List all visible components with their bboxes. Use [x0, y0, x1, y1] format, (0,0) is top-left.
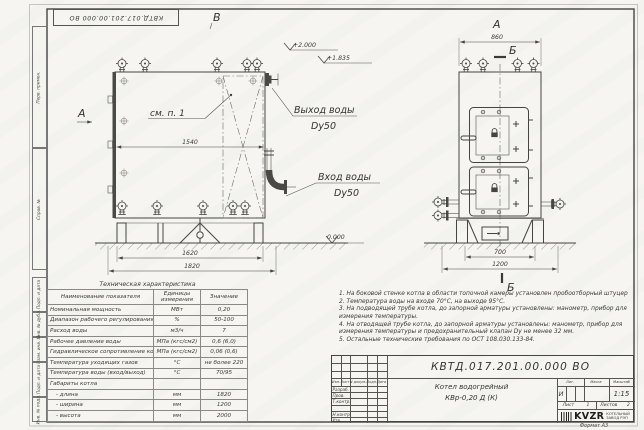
mass-label: Масса	[584, 380, 609, 384]
scale-value: 1:15	[609, 390, 635, 398]
valve-icon	[116, 200, 128, 215]
valve-icon	[528, 58, 540, 73]
door-handle	[461, 136, 476, 140]
col-header: Наименование показателя	[48, 290, 154, 305]
spec-table-title: Техническая характеристика	[47, 281, 248, 288]
technical-notes: 1. На боковой стенке котла в области топ…	[339, 291, 635, 345]
col-ndokum: N докум.	[350, 380, 367, 384]
table-row: Рабочее давление водыМПа (кгс/см2)0,6 (6…	[48, 336, 248, 347]
valve-icon	[460, 58, 472, 73]
valve-icon	[477, 58, 489, 73]
svg-text:В: В	[213, 11, 221, 24]
kvzr-logo: KVZR КОТЕЛЬНЫЙ ЗАВОД РЭП	[557, 410, 635, 423]
lower-door	[461, 167, 533, 216]
col-list: Лист	[341, 380, 350, 384]
upper-door	[461, 108, 533, 163]
ground-line-front	[95, 243, 348, 250]
crosshair-mark-icon	[249, 77, 258, 86]
crosshair-mark-icon	[120, 169, 129, 178]
margin-box-perv-primen: Перв. примен.	[32, 26, 48, 148]
outlet-nozzle	[265, 73, 278, 86]
valve-icon	[239, 200, 251, 215]
col-header: Единицы измерения	[154, 290, 201, 305]
bolt-icon	[497, 110, 501, 114]
sign-razrab: Разраб.	[333, 387, 349, 392]
outlet-leader: Выход воды Dy50	[272, 88, 357, 132]
table-row: Расход водым3/ч7	[48, 326, 248, 337]
logo-barcode-icon	[561, 412, 572, 421]
bolt-icon	[497, 156, 501, 160]
format-label: Формат А3	[552, 423, 636, 429]
sign-nkontr: Н.контр.	[333, 412, 352, 417]
table-row: Температура уходящих газов°Сне более 220	[48, 357, 248, 368]
bolt-icon	[481, 169, 485, 173]
sign-tkontr: Т.контр.	[333, 399, 351, 404]
svg-text:1820: 1820	[184, 263, 200, 270]
side-view: А 860 Б	[424, 18, 576, 294]
dim-1540: 1540	[117, 139, 264, 147]
margin-box-podp-data-2: Подп. и дата	[32, 362, 48, 397]
table-header-row: Наименование показателя Единицы измерени…	[48, 290, 248, 305]
note-item: 2. Температура воды на входе 70°С, на вы…	[339, 299, 635, 307]
logo-tagline: КОТЕЛЬНЫЙ ЗАВОД РЭП	[606, 412, 630, 421]
lit-label: Лит.	[557, 380, 584, 384]
table-row: Температура воды (вход/выход)°С70/95	[48, 368, 248, 379]
side-stub-right	[541, 199, 554, 209]
scale-label: Масштаб	[609, 380, 635, 384]
table-row: - длинамм1820	[48, 389, 248, 400]
bolt-icon	[497, 169, 501, 173]
elevation-nozzle: +1.835	[318, 55, 372, 63]
front-edge	[113, 72, 117, 218]
svg-text:1540: 1540	[182, 139, 198, 146]
margin-box-vzam-inv: Взам. инв. №	[32, 337, 48, 362]
valve-icon	[512, 58, 524, 73]
crosshair-mark-icon	[215, 77, 224, 86]
front-view: Выход воды Dy50 Вход воды Dy50 см. п. 1	[77, 11, 380, 275]
view-mark-B: В	[210, 11, 221, 29]
valve-icon	[241, 58, 253, 73]
inlet-leader: Вход воды Dy50	[286, 172, 380, 199]
valve-icon	[432, 196, 447, 208]
side-stub-left	[446, 197, 459, 221]
svg-text:1620: 1620	[182, 250, 198, 257]
col-podp: Подп.	[367, 380, 377, 384]
title-block: Изм. Лист N докум. Подп. Дата Разраб. Пр…	[331, 355, 634, 422]
valve-icon	[197, 200, 209, 215]
bolt-icon	[481, 210, 485, 214]
svg-text:+1.835: +1.835	[327, 55, 350, 62]
table-row: Габариты котла	[48, 379, 248, 390]
side-view-title: А	[492, 18, 501, 31]
note-item: 1. На боковой стенке котла в области топ…	[339, 291, 635, 299]
table-row: Гидравлическое сопротивление котлаМПа (к…	[48, 347, 248, 358]
table-row: - ширинамм1200	[48, 400, 248, 411]
table-row: - высотамм2000	[48, 410, 248, 421]
valve-icon	[211, 58, 223, 73]
margin-box-podp-data: Подп. и дата	[32, 277, 48, 312]
valve-icon	[116, 58, 128, 73]
drawing-sheet: Выход воды Dy50 Вход воды Dy50 см. п. 1	[0, 0, 644, 430]
bolt-icon	[497, 210, 501, 214]
spec-table: Наименование показателя Единицы измерени…	[47, 289, 248, 422]
margin-box-inv-podl: Инв. № подл.	[32, 397, 48, 422]
table-row: Номинальная мощностьМВт0,20	[48, 305, 248, 316]
sheets-cell: Листов 2	[596, 403, 635, 408]
titleblock-doc-number: КВТД.017.201.00.000 ВО	[387, 356, 635, 378]
col-header: Значение	[201, 290, 248, 305]
col-data: Дата	[377, 380, 387, 384]
svg-text:700: 700	[494, 249, 506, 256]
product-name: Котел водогрейный КВр-0,20 Д (К)	[387, 382, 557, 403]
svg-text:см. п. 1: см. п. 1	[150, 109, 185, 119]
spec-table-block: Техническая характеристика Наименование …	[47, 281, 248, 422]
valve-icon	[151, 200, 163, 215]
door-handle	[461, 190, 476, 194]
outlet-dn-label: Dy50	[311, 121, 336, 132]
logo-text: KVZR	[574, 411, 604, 422]
padlock-icon	[491, 129, 497, 138]
margin-box-sprav-no: Справ. №	[32, 148, 48, 270]
valve-icon	[227, 200, 239, 215]
svg-text:+2.000: +2.000	[293, 42, 316, 49]
col-izm: Изм.	[332, 380, 341, 384]
table-row: Диапазон рабочего регулирования%50-100	[48, 315, 248, 326]
note-item: 3. На подводящей трубе котла, до запорно…	[339, 306, 635, 321]
crosshair-mark-icon	[120, 117, 129, 126]
inlet-label: Вход воды	[318, 172, 372, 183]
view-arrow-A: А	[77, 107, 92, 122]
sign-utv: Утв.	[333, 418, 342, 423]
lit-value: И	[557, 390, 566, 398]
support-frame-front	[117, 218, 263, 243]
valve-icon	[432, 210, 447, 222]
doc-number-stamp: КВТД.017.201.00.000 ВО	[53, 9, 179, 26]
sign-prov: Пров.	[333, 393, 345, 398]
svg-text:1200: 1200	[492, 261, 508, 268]
elevation-top: +2.000	[284, 42, 338, 50]
section-mark-top: Б	[494, 44, 517, 57]
svg-text:А: А	[77, 107, 86, 120]
padlock-icon	[491, 184, 497, 193]
margin-box-inv-dubl: Инв. № дубл.	[32, 312, 48, 337]
sheet-cell: Лист 1	[557, 403, 596, 408]
svg-text:860: 860	[491, 34, 503, 41]
note-item: 4. На отводящей трубе котла, до запорной…	[339, 322, 635, 337]
inlet-dn-label: Dy50	[334, 188, 359, 199]
svg-text:Б: Б	[509, 44, 517, 57]
crosshair-mark-icon	[120, 77, 129, 86]
outlet-label: Выход воды	[294, 105, 355, 116]
valve-icon	[139, 58, 151, 73]
inlet-elbow	[264, 148, 296, 194]
valve-icon	[251, 58, 263, 73]
bolt-icon	[481, 110, 485, 114]
note-item: 5. Остальные технические требования по О…	[339, 337, 635, 345]
bolt-icon	[481, 156, 485, 160]
elevation-ground: 0.000	[322, 234, 364, 243]
callout-see-note: см. п. 1	[148, 94, 232, 119]
dim-860: 860	[459, 34, 541, 66]
